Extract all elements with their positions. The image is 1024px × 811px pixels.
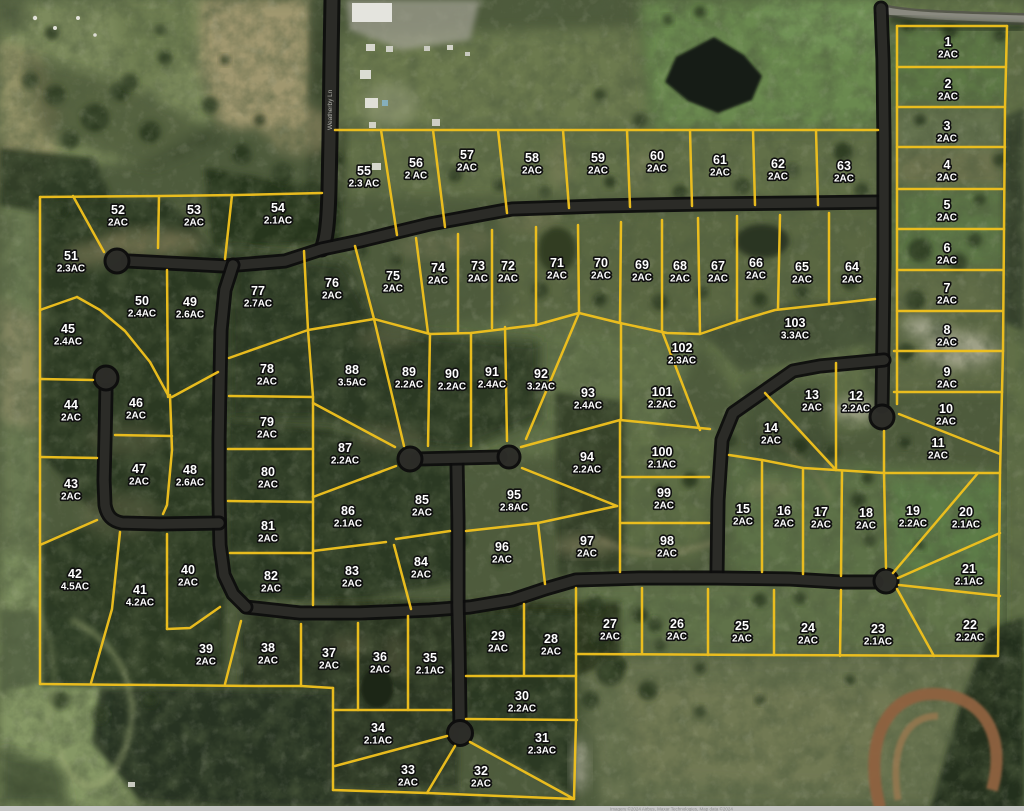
svg-text:63: 63 — [837, 159, 851, 173]
svg-text:2AC: 2AC — [588, 166, 608, 177]
svg-text:2.2AC: 2.2AC — [956, 633, 984, 644]
svg-text:97: 97 — [580, 534, 594, 548]
svg-text:60: 60 — [650, 149, 664, 163]
svg-text:94: 94 — [580, 450, 594, 464]
svg-text:72: 72 — [501, 259, 515, 273]
svg-text:3.3AC: 3.3AC — [781, 331, 809, 342]
svg-text:2AC: 2AC — [937, 173, 957, 184]
svg-text:2AC: 2AC — [938, 92, 958, 103]
svg-text:33: 33 — [401, 763, 415, 777]
svg-text:2AC: 2AC — [184, 218, 204, 229]
svg-text:2AC: 2AC — [61, 492, 81, 503]
svg-text:2.4AC: 2.4AC — [574, 401, 602, 412]
svg-text:6: 6 — [944, 241, 951, 255]
svg-text:2AC: 2AC — [398, 778, 418, 789]
svg-text:Imagery ©2024 Airbus, Maxar Te: Imagery ©2024 Airbus, Maxar Technologies… — [610, 806, 733, 811]
svg-text:2AC: 2AC — [937, 338, 957, 349]
svg-text:7: 7 — [944, 281, 951, 295]
svg-text:81: 81 — [261, 519, 275, 533]
svg-text:58: 58 — [525, 151, 539, 165]
svg-text:52: 52 — [111, 203, 125, 217]
svg-text:13: 13 — [805, 388, 819, 402]
svg-text:74: 74 — [431, 261, 445, 275]
svg-text:86: 86 — [341, 504, 355, 518]
svg-text:3.2AC: 3.2AC — [527, 382, 555, 393]
svg-text:68: 68 — [673, 259, 687, 273]
svg-text:2.3AC: 2.3AC — [668, 356, 696, 367]
svg-text:15: 15 — [736, 502, 750, 516]
svg-text:2.1AC: 2.1AC — [334, 519, 362, 530]
svg-text:87: 87 — [338, 441, 352, 455]
svg-text:2AC: 2AC — [708, 274, 728, 285]
svg-text:2AC: 2AC — [541, 647, 561, 658]
svg-text:2AC: 2AC — [936, 417, 956, 428]
svg-text:2.2AC: 2.2AC — [508, 704, 536, 715]
svg-text:19: 19 — [906, 504, 920, 518]
svg-text:53: 53 — [187, 203, 201, 217]
svg-text:50: 50 — [135, 294, 149, 308]
svg-text:2AC: 2AC — [774, 519, 794, 530]
svg-text:2AC: 2AC — [61, 413, 81, 424]
svg-text:46: 46 — [129, 396, 143, 410]
svg-text:2AC: 2AC — [937, 380, 957, 391]
svg-text:2.2AC: 2.2AC — [438, 382, 466, 393]
svg-text:16: 16 — [777, 504, 791, 518]
svg-text:43: 43 — [64, 477, 78, 491]
svg-text:2.4AC: 2.4AC — [128, 309, 156, 320]
svg-text:2AC: 2AC — [492, 555, 512, 566]
svg-text:30: 30 — [515, 689, 529, 703]
svg-text:2AC: 2AC — [746, 271, 766, 282]
svg-text:2.1AC: 2.1AC — [864, 637, 892, 648]
svg-text:88: 88 — [345, 363, 359, 377]
svg-text:2AC: 2AC — [928, 451, 948, 462]
svg-text:2AC: 2AC — [322, 291, 342, 302]
svg-text:84: 84 — [414, 555, 428, 569]
svg-text:75: 75 — [386, 269, 400, 283]
svg-text:2AC: 2AC — [600, 632, 620, 643]
svg-text:2AC: 2AC — [732, 634, 752, 645]
svg-text:26: 26 — [670, 617, 684, 631]
svg-text:2.1AC: 2.1AC — [264, 216, 292, 227]
svg-text:3.5AC: 3.5AC — [338, 378, 366, 389]
svg-text:2AC: 2AC — [468, 274, 488, 285]
svg-text:2AC: 2AC — [488, 644, 508, 655]
svg-text:2AC: 2AC — [811, 520, 831, 531]
svg-text:1: 1 — [945, 35, 952, 49]
svg-text:2.6AC: 2.6AC — [176, 310, 204, 321]
svg-text:2AC: 2AC — [654, 501, 674, 512]
svg-text:2AC: 2AC — [178, 578, 198, 589]
svg-text:2AC: 2AC — [126, 411, 146, 422]
svg-text:38: 38 — [261, 641, 275, 655]
svg-text:2AC: 2AC — [411, 570, 431, 581]
svg-text:101: 101 — [652, 385, 673, 399]
svg-text:2AC: 2AC — [342, 579, 362, 590]
svg-text:2.1AC: 2.1AC — [648, 460, 676, 471]
svg-text:2.1AC: 2.1AC — [955, 577, 983, 588]
svg-text:80: 80 — [261, 465, 275, 479]
svg-text:8: 8 — [944, 323, 951, 337]
svg-text:2AC: 2AC — [937, 296, 957, 307]
svg-text:2AC: 2AC — [261, 584, 281, 595]
svg-text:2.4AC: 2.4AC — [54, 337, 82, 348]
svg-text:3: 3 — [944, 119, 951, 133]
svg-text:2AC: 2AC — [798, 636, 818, 647]
svg-text:2.1AC: 2.1AC — [952, 520, 980, 531]
svg-text:70: 70 — [594, 256, 608, 270]
svg-text:2AC: 2AC — [834, 174, 854, 185]
svg-text:61: 61 — [713, 153, 727, 167]
svg-text:73: 73 — [471, 259, 485, 273]
svg-text:55: 55 — [357, 164, 371, 178]
svg-text:2AC: 2AC — [412, 508, 432, 519]
svg-text:2.3AC: 2.3AC — [528, 746, 556, 757]
svg-text:2AC: 2AC — [383, 284, 403, 295]
svg-text:98: 98 — [660, 534, 674, 548]
svg-text:71: 71 — [550, 256, 564, 270]
svg-text:32: 32 — [474, 764, 488, 778]
svg-text:2AC: 2AC — [591, 271, 611, 282]
svg-text:64: 64 — [845, 260, 859, 274]
svg-text:9: 9 — [944, 365, 951, 379]
svg-text:2AC: 2AC — [792, 275, 812, 286]
svg-text:2.2AC: 2.2AC — [395, 380, 423, 391]
svg-text:14: 14 — [764, 421, 778, 435]
svg-text:83: 83 — [345, 564, 359, 578]
svg-text:2AC: 2AC — [129, 477, 149, 488]
svg-text:2AC: 2AC — [547, 271, 567, 282]
svg-text:2AC: 2AC — [768, 172, 788, 183]
svg-text:18: 18 — [859, 506, 873, 520]
svg-text:2AC: 2AC — [856, 521, 876, 532]
svg-text:40: 40 — [181, 563, 195, 577]
svg-text:2AC: 2AC — [257, 430, 277, 441]
svg-text:41: 41 — [133, 583, 147, 597]
svg-text:91: 91 — [485, 365, 499, 379]
svg-text:103: 103 — [785, 316, 806, 330]
svg-text:37: 37 — [322, 646, 336, 660]
svg-text:2AC: 2AC — [498, 274, 518, 285]
svg-text:2AC: 2AC — [428, 276, 448, 287]
svg-text:2AC: 2AC — [761, 436, 781, 447]
svg-text:96: 96 — [495, 540, 509, 554]
svg-text:36: 36 — [373, 650, 387, 664]
svg-text:66: 66 — [749, 256, 763, 270]
svg-text:78: 78 — [260, 362, 274, 376]
svg-text:45: 45 — [61, 322, 75, 336]
svg-text:2.1AC: 2.1AC — [364, 736, 392, 747]
svg-text:2AC: 2AC — [319, 661, 339, 672]
svg-text:39: 39 — [199, 642, 213, 656]
svg-text:4.5AC: 4.5AC — [61, 582, 89, 593]
svg-text:2AC: 2AC — [522, 166, 542, 177]
svg-text:49: 49 — [183, 295, 197, 309]
svg-text:25: 25 — [735, 619, 749, 633]
svg-text:2.8AC: 2.8AC — [500, 503, 528, 514]
svg-text:77: 77 — [251, 284, 265, 298]
svg-text:2AC: 2AC — [647, 164, 667, 175]
svg-text:102: 102 — [672, 341, 693, 355]
svg-text:2AC: 2AC — [108, 218, 128, 229]
svg-text:2.6AC: 2.6AC — [176, 478, 204, 489]
svg-text:2AC: 2AC — [257, 377, 277, 388]
svg-text:2AC: 2AC — [937, 256, 957, 267]
svg-text:69: 69 — [635, 258, 649, 272]
svg-text:2.2AC: 2.2AC — [573, 465, 601, 476]
svg-text:2AC: 2AC — [657, 549, 677, 560]
svg-text:67: 67 — [711, 259, 725, 273]
svg-text:17: 17 — [814, 505, 828, 519]
svg-text:95: 95 — [507, 488, 521, 502]
svg-text:2.2AC: 2.2AC — [648, 400, 676, 411]
svg-text:2AC: 2AC — [258, 656, 278, 667]
svg-text:47: 47 — [132, 462, 146, 476]
svg-text:27: 27 — [603, 617, 617, 631]
svg-text:2AC: 2AC — [258, 480, 278, 491]
svg-text:11: 11 — [931, 436, 944, 450]
svg-text:2.1AC: 2.1AC — [416, 666, 444, 677]
svg-text:2: 2 — [945, 77, 952, 91]
svg-text:31: 31 — [535, 731, 549, 745]
svg-text:57: 57 — [460, 148, 474, 162]
svg-text:2AC: 2AC — [937, 134, 957, 145]
svg-text:48: 48 — [183, 463, 197, 477]
svg-text:51: 51 — [64, 249, 78, 263]
svg-text:2.4AC: 2.4AC — [478, 380, 506, 391]
svg-text:92: 92 — [534, 367, 548, 381]
svg-text:12: 12 — [849, 389, 863, 403]
svg-text:79: 79 — [260, 415, 274, 429]
svg-text:24: 24 — [801, 621, 815, 635]
svg-text:20: 20 — [959, 505, 973, 519]
svg-text:2.2AC: 2.2AC — [842, 404, 870, 415]
svg-text:10: 10 — [939, 402, 953, 416]
svg-text:93: 93 — [581, 386, 595, 400]
svg-text:62: 62 — [771, 157, 785, 171]
svg-text:54: 54 — [271, 201, 285, 215]
svg-text:2AC: 2AC — [667, 632, 687, 643]
svg-text:2AC: 2AC — [670, 274, 690, 285]
svg-text:2AC: 2AC — [577, 549, 597, 560]
svg-text:2AC: 2AC — [471, 779, 491, 790]
svg-text:2AC: 2AC — [937, 213, 957, 224]
svg-text:85: 85 — [415, 493, 429, 507]
svg-text:29: 29 — [491, 629, 505, 643]
svg-text:4: 4 — [944, 158, 951, 172]
svg-text:76: 76 — [325, 276, 339, 290]
svg-text:21: 21 — [962, 562, 976, 576]
svg-text:44: 44 — [64, 398, 78, 412]
svg-text:2.2AC: 2.2AC — [331, 456, 359, 467]
svg-text:22: 22 — [963, 618, 977, 632]
svg-text:2AC: 2AC — [710, 168, 730, 179]
svg-text:5: 5 — [944, 198, 951, 212]
svg-text:4.2AC: 4.2AC — [126, 598, 154, 609]
svg-text:Weatherby Ln: Weatherby Ln — [327, 89, 334, 130]
svg-text:2.3AC: 2.3AC — [57, 264, 85, 275]
svg-text:2AC: 2AC — [457, 163, 477, 174]
svg-text:2.7AC: 2.7AC — [244, 299, 272, 310]
svg-text:42: 42 — [68, 567, 82, 581]
svg-text:2AC: 2AC — [802, 403, 822, 414]
svg-text:2AC: 2AC — [370, 665, 390, 676]
svg-text:99: 99 — [657, 486, 671, 500]
svg-text:82: 82 — [264, 569, 278, 583]
svg-text:65: 65 — [795, 260, 809, 274]
svg-text:89: 89 — [402, 365, 416, 379]
svg-text:2.2AC: 2.2AC — [899, 519, 927, 530]
svg-text:56: 56 — [409, 156, 423, 170]
svg-text:34: 34 — [371, 721, 385, 735]
svg-text:100: 100 — [652, 445, 673, 459]
svg-text:90: 90 — [445, 367, 459, 381]
svg-text:2AC: 2AC — [196, 657, 216, 668]
svg-text:23: 23 — [871, 622, 885, 636]
svg-text:2AC: 2AC — [733, 517, 753, 528]
svg-text:2AC: 2AC — [258, 534, 278, 545]
svg-text:2.3 AC: 2.3 AC — [349, 179, 380, 190]
svg-text:2AC: 2AC — [842, 275, 862, 286]
svg-text:59: 59 — [591, 151, 605, 165]
svg-text:35: 35 — [423, 651, 437, 665]
svg-text:2 AC: 2 AC — [405, 171, 427, 182]
svg-text:2AC: 2AC — [632, 273, 652, 284]
svg-text:2AC: 2AC — [938, 50, 958, 61]
svg-text:28: 28 — [544, 632, 558, 646]
